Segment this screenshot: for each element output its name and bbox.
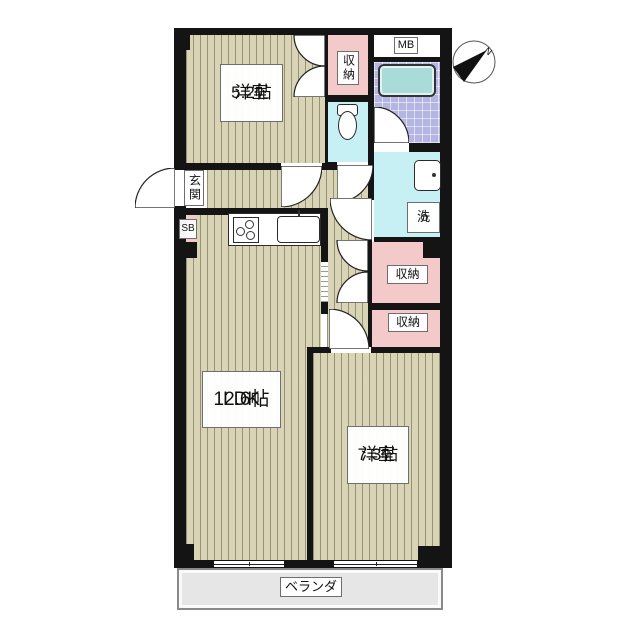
floorplan-canvas: 洋室 5.2帖 収納 MB 玄関 SB 洗 収納 収納 LDK 12.6帖 洋室… — [0, 0, 640, 640]
kitchen-sink — [277, 216, 320, 243]
entrance-label: 玄関 — [184, 170, 204, 206]
ldk-label: LDK 12.6帖 — [202, 371, 281, 428]
washbasin-faucet — [432, 173, 436, 177]
wall-bedroom2-north-b — [371, 347, 440, 353]
wall-ldk-east-stub — [321, 302, 328, 314]
pillar-closet-mid — [423, 240, 440, 258]
wall-closet-sep — [372, 303, 440, 310]
wall-bedroom1-south-a — [174, 163, 281, 170]
bedroom2-label: 洋室 7.3帖 — [347, 426, 409, 484]
bathtub — [378, 64, 436, 97]
shoe-box-label: SB — [179, 219, 197, 239]
sliding-door-ldk — [321, 262, 328, 302]
laundry-text: 洗 — [417, 209, 430, 225]
washbasin — [414, 160, 441, 191]
wall-toilet-south — [328, 162, 337, 170]
stove — [233, 217, 259, 243]
veranda-label: ベランダ — [280, 577, 342, 597]
meter-box-label: MB — [394, 37, 418, 54]
stove-burner — [236, 227, 245, 236]
wall-mb-bath — [374, 57, 440, 62]
pillar-bottom-right — [418, 546, 452, 568]
bedroom1-size: 5.2帖 — [231, 82, 272, 103]
stove-burner — [246, 231, 255, 240]
wall-left-lower — [174, 206, 186, 568]
pillar-bottom-left — [174, 544, 194, 568]
wall-ldk-east-upper — [321, 208, 328, 262]
closet-mid-label: 収納 — [387, 265, 428, 284]
wall-top — [174, 28, 452, 35]
toilet-bowl — [338, 111, 357, 140]
ldk-size: 12.6帖 — [214, 388, 270, 412]
closet-low-label: 収納 — [388, 313, 428, 332]
bedroom2-size: 7.3帖 — [358, 444, 399, 465]
wall-closet-toilet — [325, 95, 368, 102]
wall-bedroom2-west — [307, 347, 313, 568]
sink-faucet — [298, 210, 300, 217]
wall-sb-block — [174, 242, 197, 258]
wall-bath-south — [409, 143, 440, 152]
bedroom1-label: 洋室 5.2帖 — [220, 64, 283, 122]
window-bedroom2 — [334, 560, 417, 568]
pillar-top-left — [174, 28, 190, 50]
wall-right — [440, 28, 452, 568]
closet-top-label: 収納 — [337, 51, 359, 85]
bath-door-opening — [374, 143, 409, 152]
window-ldk — [214, 560, 284, 568]
stove-burner — [245, 220, 254, 229]
laundry-label: 洗 — [407, 202, 440, 233]
